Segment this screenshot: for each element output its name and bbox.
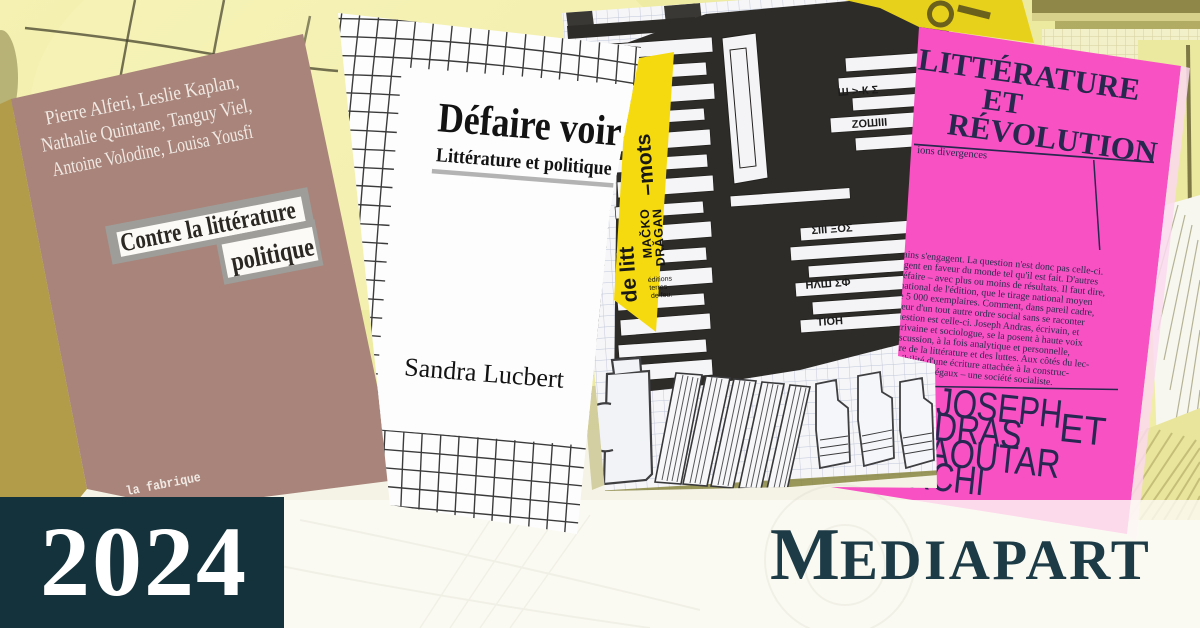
svg-text:de feu.: de feu. [651, 291, 673, 299]
svg-text:ΖΟШΙΙΙ: ΖΟШΙΙΙ [851, 117, 887, 131]
svg-text:ET: ET [1058, 406, 1108, 455]
svg-text:terres: terres [649, 284, 668, 292]
svg-text:ΤΙΟΗ: ΤΙΟΗ [816, 315, 843, 329]
svg-text:–mots: –mots [632, 133, 659, 196]
svg-text:2024: 2024 [40, 506, 248, 617]
svg-text:de litt: de litt [615, 246, 642, 303]
